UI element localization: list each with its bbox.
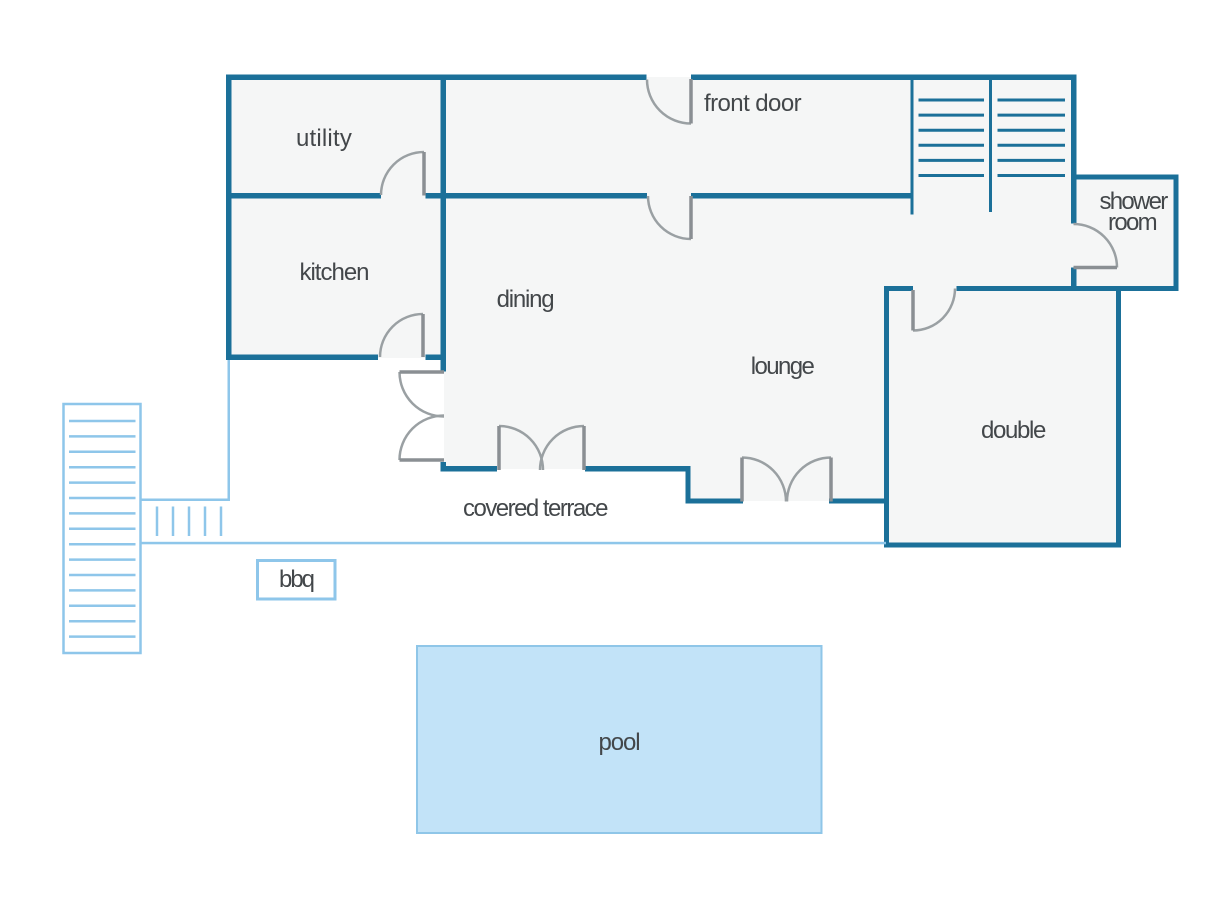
svg-text:room: room [1108, 209, 1157, 236]
svg-text:covered terrace: covered terrace [463, 495, 608, 522]
svg-text:dining: dining [497, 286, 554, 313]
svg-text:bbq: bbq [279, 566, 314, 593]
svg-text:pool: pool [599, 729, 640, 756]
svg-text:kitchen: kitchen [299, 259, 368, 286]
svg-text:double: double [981, 417, 1046, 444]
svg-text:lounge: lounge [751, 353, 815, 380]
svg-text:utility: utility [296, 125, 352, 152]
svg-text:front door: front door [704, 90, 802, 117]
